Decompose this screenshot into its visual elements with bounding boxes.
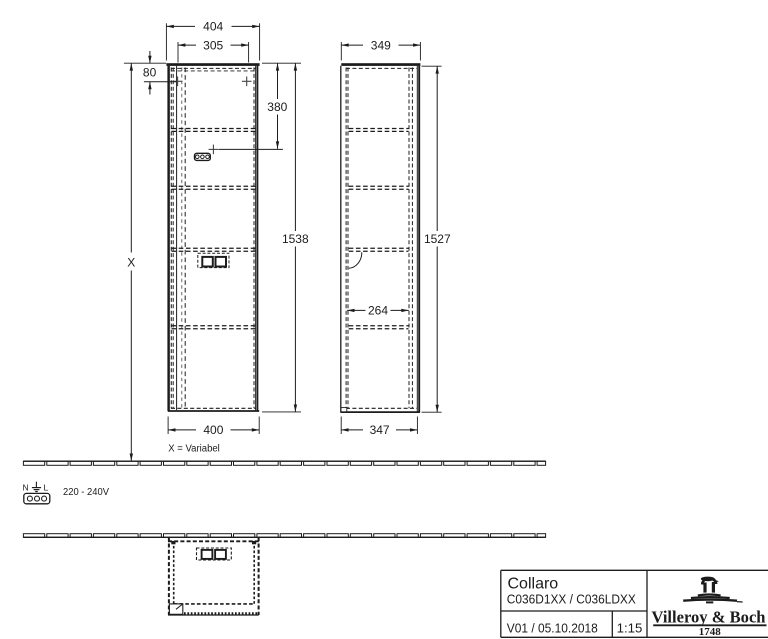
svg-text:1:15: 1:15 bbox=[617, 620, 643, 635]
svg-text:1748: 1748 bbox=[699, 626, 722, 638]
svg-text:X: X bbox=[127, 255, 135, 269]
svg-text:349: 349 bbox=[371, 38, 391, 52]
svg-text:Collaro: Collaro bbox=[508, 576, 559, 593]
svg-text:V01 / 05.10.2018: V01 / 05.10.2018 bbox=[507, 620, 598, 635]
svg-text:C036D1XX / C036LDXX: C036D1XX / C036LDXX bbox=[507, 591, 636, 606]
svg-text:1527: 1527 bbox=[424, 232, 451, 246]
svg-text:264: 264 bbox=[368, 304, 388, 318]
svg-text:1538: 1538 bbox=[282, 232, 309, 246]
svg-text:305: 305 bbox=[203, 38, 223, 52]
svg-text:347: 347 bbox=[370, 423, 390, 437]
svg-text:N: N bbox=[23, 483, 29, 493]
svg-text:220 - 240V: 220 - 240V bbox=[63, 487, 109, 498]
svg-text:L: L bbox=[44, 483, 49, 493]
svg-text:80: 80 bbox=[143, 66, 157, 80]
svg-text:380: 380 bbox=[267, 100, 287, 114]
svg-text:400: 400 bbox=[203, 423, 223, 437]
svg-text:Villeroy & Boch: Villeroy & Boch bbox=[652, 607, 767, 626]
svg-text:404: 404 bbox=[203, 20, 223, 34]
svg-text:X = Variabel: X = Variabel bbox=[168, 443, 220, 454]
